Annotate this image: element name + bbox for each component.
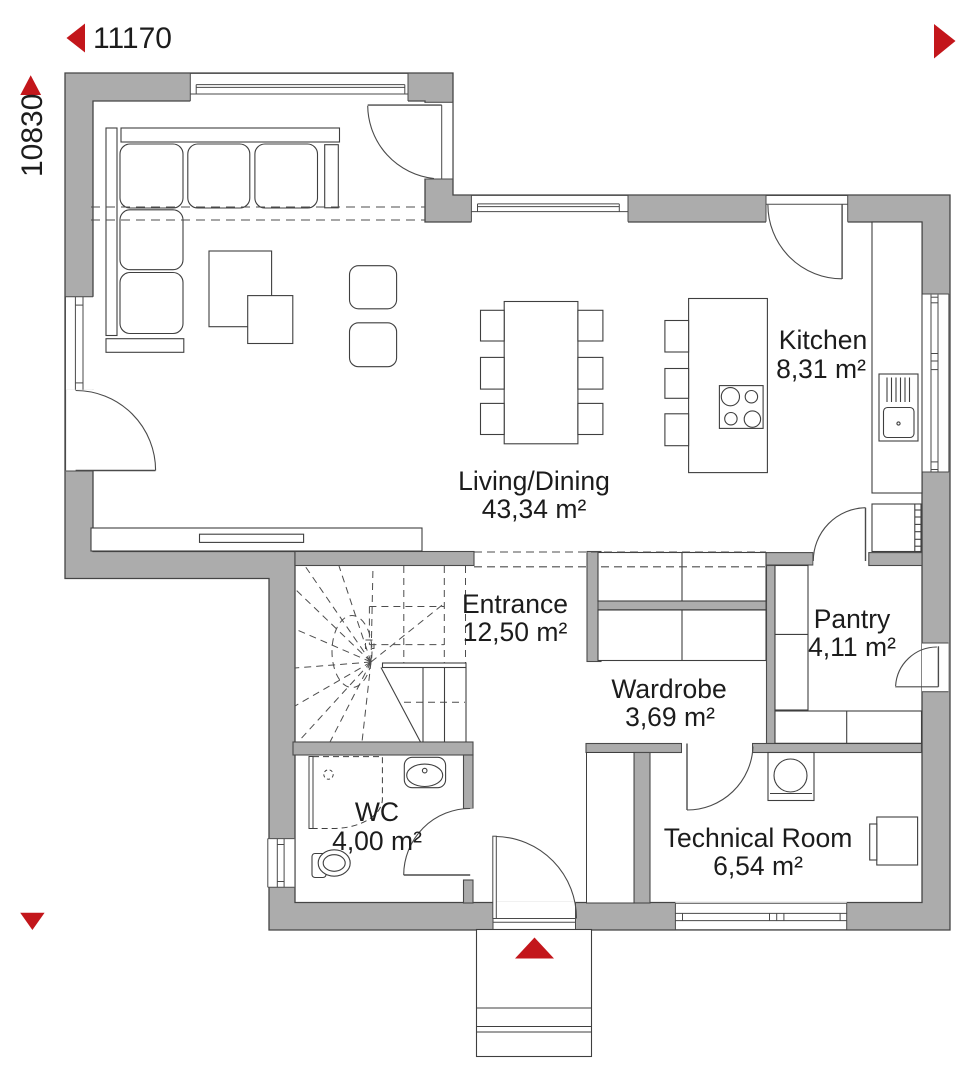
svg-text:8,31 m²: 8,31 m² (776, 354, 866, 384)
svg-text:11170: 11170 (93, 22, 172, 55)
svg-text:Wardrobe: Wardrobe (611, 674, 726, 704)
svg-text:10830: 10830 (16, 94, 49, 177)
svg-text:Entrance: Entrance (462, 589, 568, 619)
svg-text:Technical Room: Technical Room (664, 823, 853, 853)
svg-text:WC: WC (355, 797, 399, 827)
svg-text:6,54 m²: 6,54 m² (713, 851, 803, 881)
svg-text:Pantry: Pantry (814, 604, 891, 634)
svg-text:Kitchen: Kitchen (779, 325, 867, 355)
svg-text:4,11 m²: 4,11 m² (808, 632, 896, 662)
svg-text:43,34 m²: 43,34 m² (482, 494, 587, 524)
svg-text:Living/Dining: Living/Dining (458, 466, 610, 496)
svg-text:4,00 m²: 4,00 m² (332, 826, 422, 856)
svg-text:12,50 m²: 12,50 m² (463, 617, 568, 647)
svg-text:3,69 m²: 3,69 m² (625, 702, 715, 732)
